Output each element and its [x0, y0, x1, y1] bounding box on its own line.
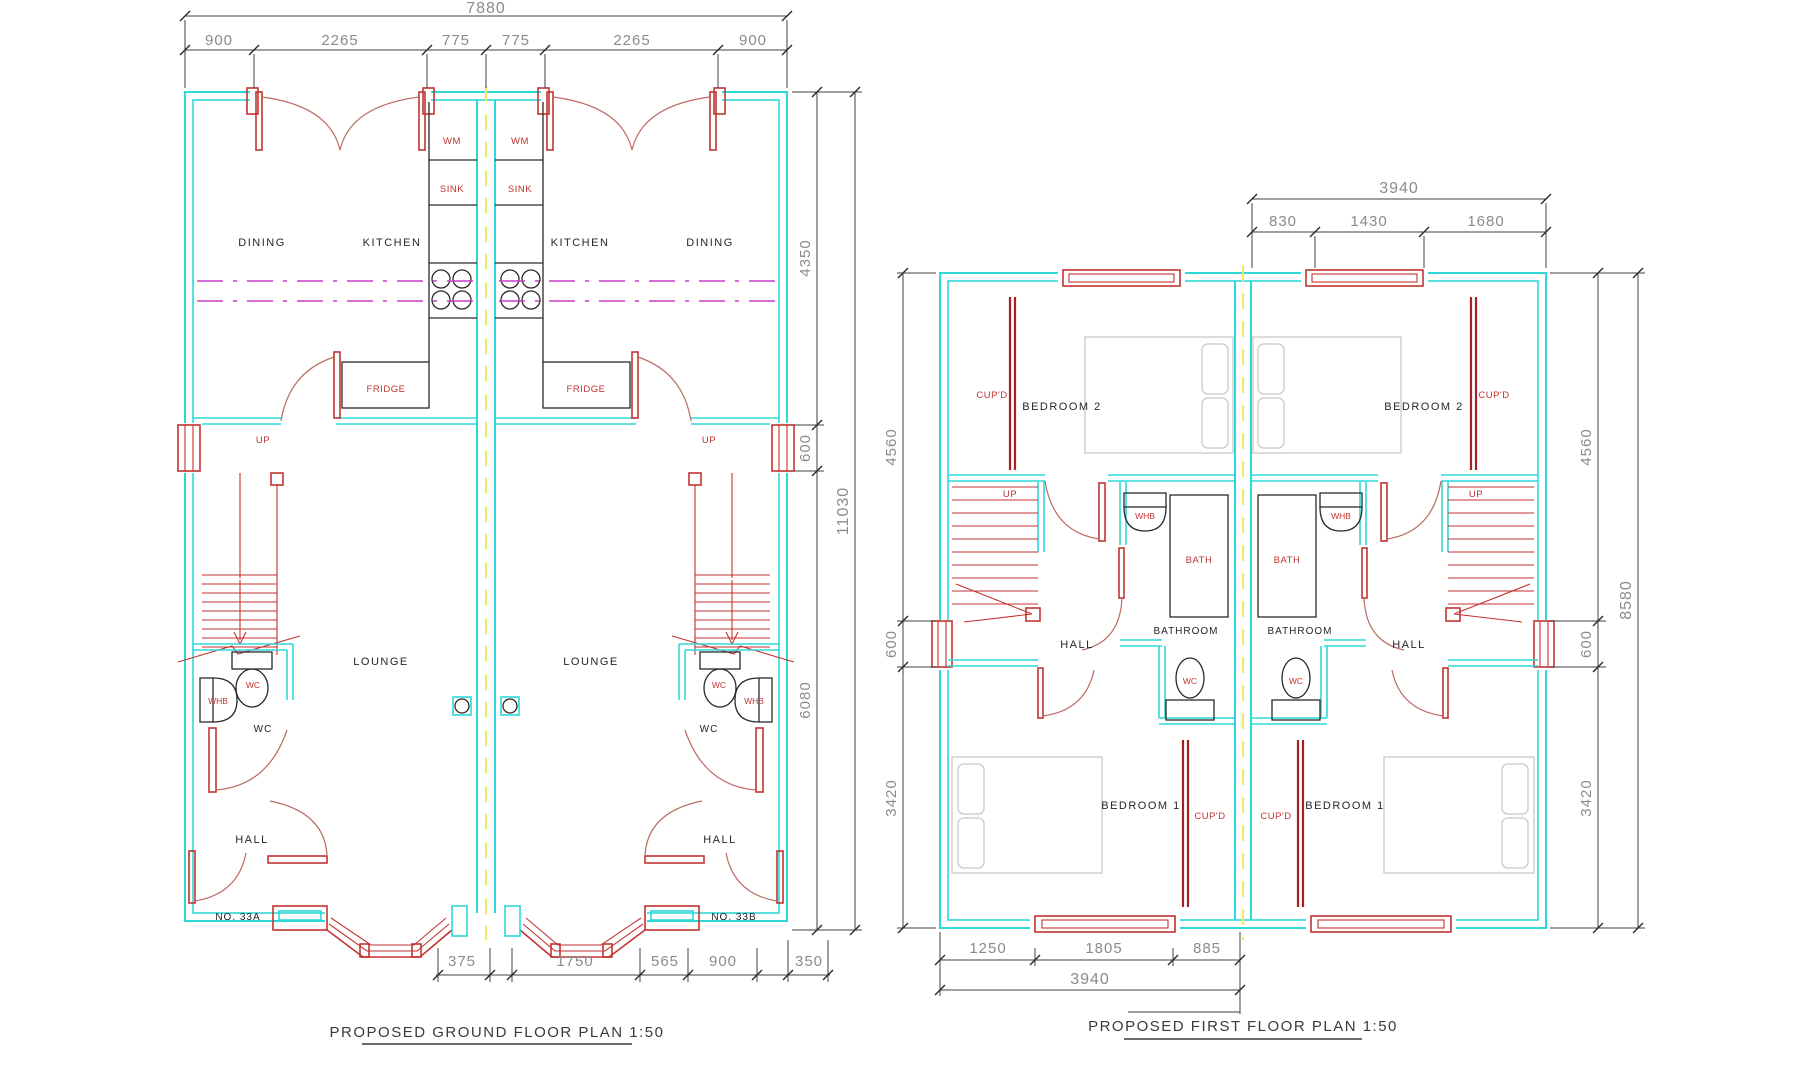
ground-right-unit	[495, 84, 796, 957]
dim-first-total-top: 3940	[1379, 180, 1419, 197]
first-inner-wall	[948, 281, 1538, 920]
floor-plans-canvas: 7880 900 2265 775 775 2265 900 4350 600 …	[0, 0, 1800, 1072]
ground-dims-top: 7880 900 2265 775 775 2265 900	[180, 0, 792, 88]
dim-first-right-0: 4560	[1578, 428, 1595, 465]
dim-ground-total-height: 11030	[835, 487, 852, 535]
fixture-label-wc-ff-left: WC	[1183, 676, 1197, 686]
dim-first-top-2: 1680	[1467, 213, 1504, 230]
room-label-hall-ff-left: HALL	[1060, 639, 1094, 651]
cupboard-label-b1-right: CUP'D	[1260, 811, 1291, 822]
stairs-up-label-ff-right: UP	[1469, 489, 1483, 500]
fixture-label-wm-left: WM	[443, 136, 461, 147]
dim-ground-top-5: 900	[739, 32, 767, 49]
ground-left-unit	[176, 84, 477, 957]
fixture-label-fridge-left: FRIDGE	[367, 384, 406, 395]
fixture-label-whb-ff-left: WHB	[1135, 511, 1155, 521]
dim-ground-bottom-4: 350	[795, 953, 823, 970]
fixture-label-sink-left: SINK	[440, 184, 464, 195]
stairs-up-label-right: UP	[702, 435, 716, 446]
fixture-label-wc-left: WC	[246, 680, 260, 690]
room-label-bedroom1-right: BEDROOM 1	[1305, 800, 1385, 812]
dim-first-total-right: 8580	[1618, 580, 1635, 620]
first-dims-bottom: 1250 1805 885 3940	[935, 932, 1245, 1014]
ground-dims-right: 4350 600 6080 11030	[792, 87, 862, 935]
room-label-dining-right: DINING	[686, 237, 734, 249]
fixture-label-whb-right: WHB	[744, 696, 764, 706]
first-dims-top: 3940 830 1430 1680	[1247, 180, 1551, 268]
fixture-label-whb-left: WHB	[208, 696, 228, 706]
room-label-hall-left: HALL	[235, 834, 269, 846]
room-label-kitchen-left: KITCHEN	[363, 237, 422, 249]
first-dims-right: 4560 600 3420 8580	[1550, 268, 1645, 933]
fixture-label-bath-left: BATH	[1186, 555, 1213, 566]
dim-first-total-bottom: 3940	[1070, 971, 1110, 988]
room-label-lounge-right: LOUNGE	[563, 656, 618, 668]
dim-first-top-0: 830	[1269, 213, 1297, 230]
first-title-text: PROPOSED FIRST FLOOR PLAN 1:50	[1088, 1018, 1398, 1035]
room-label-wc-right: WC	[700, 724, 719, 735]
stairs-up-label-left: UP	[256, 435, 270, 446]
dim-ground-top-2: 775	[442, 32, 470, 49]
dim-first-left-2: 3420	[883, 779, 900, 816]
room-label-lounge-left: LOUNGE	[353, 656, 408, 668]
fixture-label-wm-right: WM	[511, 136, 529, 147]
fixture-label-wc-right: WC	[712, 680, 726, 690]
cupboard-label-b1-left: CUP'D	[1194, 811, 1225, 822]
dim-ground-bottom-2: 565	[651, 953, 679, 970]
dim-ground-bottom-1: 1750	[556, 953, 593, 970]
fixture-label-sink-right: SINK	[508, 184, 532, 195]
fixture-label-fridge-right: FRIDGE	[567, 384, 606, 395]
dim-ground-right-0: 4350	[797, 239, 814, 276]
dim-ground-total-width: 7880	[466, 0, 506, 17]
unit-number-33a: NO. 33A	[215, 912, 260, 923]
cupboard-label-b2-left: CUP'D	[976, 390, 1007, 401]
dim-first-top-1: 1430	[1350, 213, 1387, 230]
room-label-bathroom-right: BATHROOM	[1267, 626, 1332, 637]
first-right-unit	[1251, 269, 1556, 932]
room-label-bathroom-left: BATHROOM	[1153, 626, 1218, 637]
cupboard-label-b2-right: CUP'D	[1478, 390, 1509, 401]
dim-first-right-1: 600	[1578, 630, 1595, 658]
dim-ground-top-0: 900	[205, 32, 233, 49]
dim-ground-top-4: 2265	[613, 32, 650, 49]
room-label-kitchen-right: KITCHEN	[551, 237, 610, 249]
ground-title-text: PROPOSED GROUND FLOOR PLAN 1:50	[330, 1024, 665, 1041]
dim-first-left-1: 600	[883, 630, 900, 658]
dim-first-right-2: 3420	[1578, 779, 1595, 816]
dim-ground-top-3: 775	[502, 32, 530, 49]
ground-floor-plan: 7880 900 2265 775 775 2265 900 4350 600 …	[176, 0, 862, 1044]
dim-ground-bottom-3: 900	[709, 953, 737, 970]
fixture-label-bath-right: BATH	[1274, 555, 1301, 566]
room-label-bedroom2-right: BEDROOM 2	[1384, 401, 1464, 413]
room-label-bedroom2-left: BEDROOM 2	[1022, 401, 1102, 413]
ground-floor-title: PROPOSED GROUND FLOOR PLAN 1:50	[330, 1024, 665, 1044]
first-dims-left: 4560 600 3420	[883, 268, 936, 933]
dim-first-left-0: 4560	[883, 428, 900, 465]
dim-ground-right-2: 6080	[797, 681, 814, 718]
dim-ground-top-1: 2265	[321, 32, 358, 49]
room-label-dining-left: DINING	[238, 237, 286, 249]
dim-first-bottom-2: 885	[1193, 940, 1221, 957]
fixture-label-wc-ff-right: WC	[1289, 676, 1303, 686]
dim-first-bottom-0: 1250	[969, 940, 1006, 957]
room-label-hall-ff-right: HALL	[1392, 639, 1426, 651]
fixture-label-whb-ff-right: WHB	[1331, 511, 1351, 521]
first-floor-plan: 3940 830 1430 1680 4560 600 3420	[883, 180, 1645, 1039]
dim-first-bottom-1: 1805	[1085, 940, 1122, 957]
dim-ground-right-1: 600	[797, 434, 814, 462]
dim-ground-bottom-0: 375	[448, 953, 476, 970]
stairs-up-label-ff-left: UP	[1003, 489, 1017, 500]
room-label-wc-left: WC	[254, 724, 273, 735]
room-label-bedroom1-left: BEDROOM 1	[1101, 800, 1181, 812]
first-floor-title: PROPOSED FIRST FLOOR PLAN 1:50	[1088, 995, 1398, 1039]
unit-number-33b: NO. 33B	[711, 912, 756, 923]
first-left-unit	[930, 269, 1235, 932]
ground-dims-bottom: 375 1750 565 900 350	[433, 940, 833, 982]
room-label-hall-right: HALL	[703, 834, 737, 846]
